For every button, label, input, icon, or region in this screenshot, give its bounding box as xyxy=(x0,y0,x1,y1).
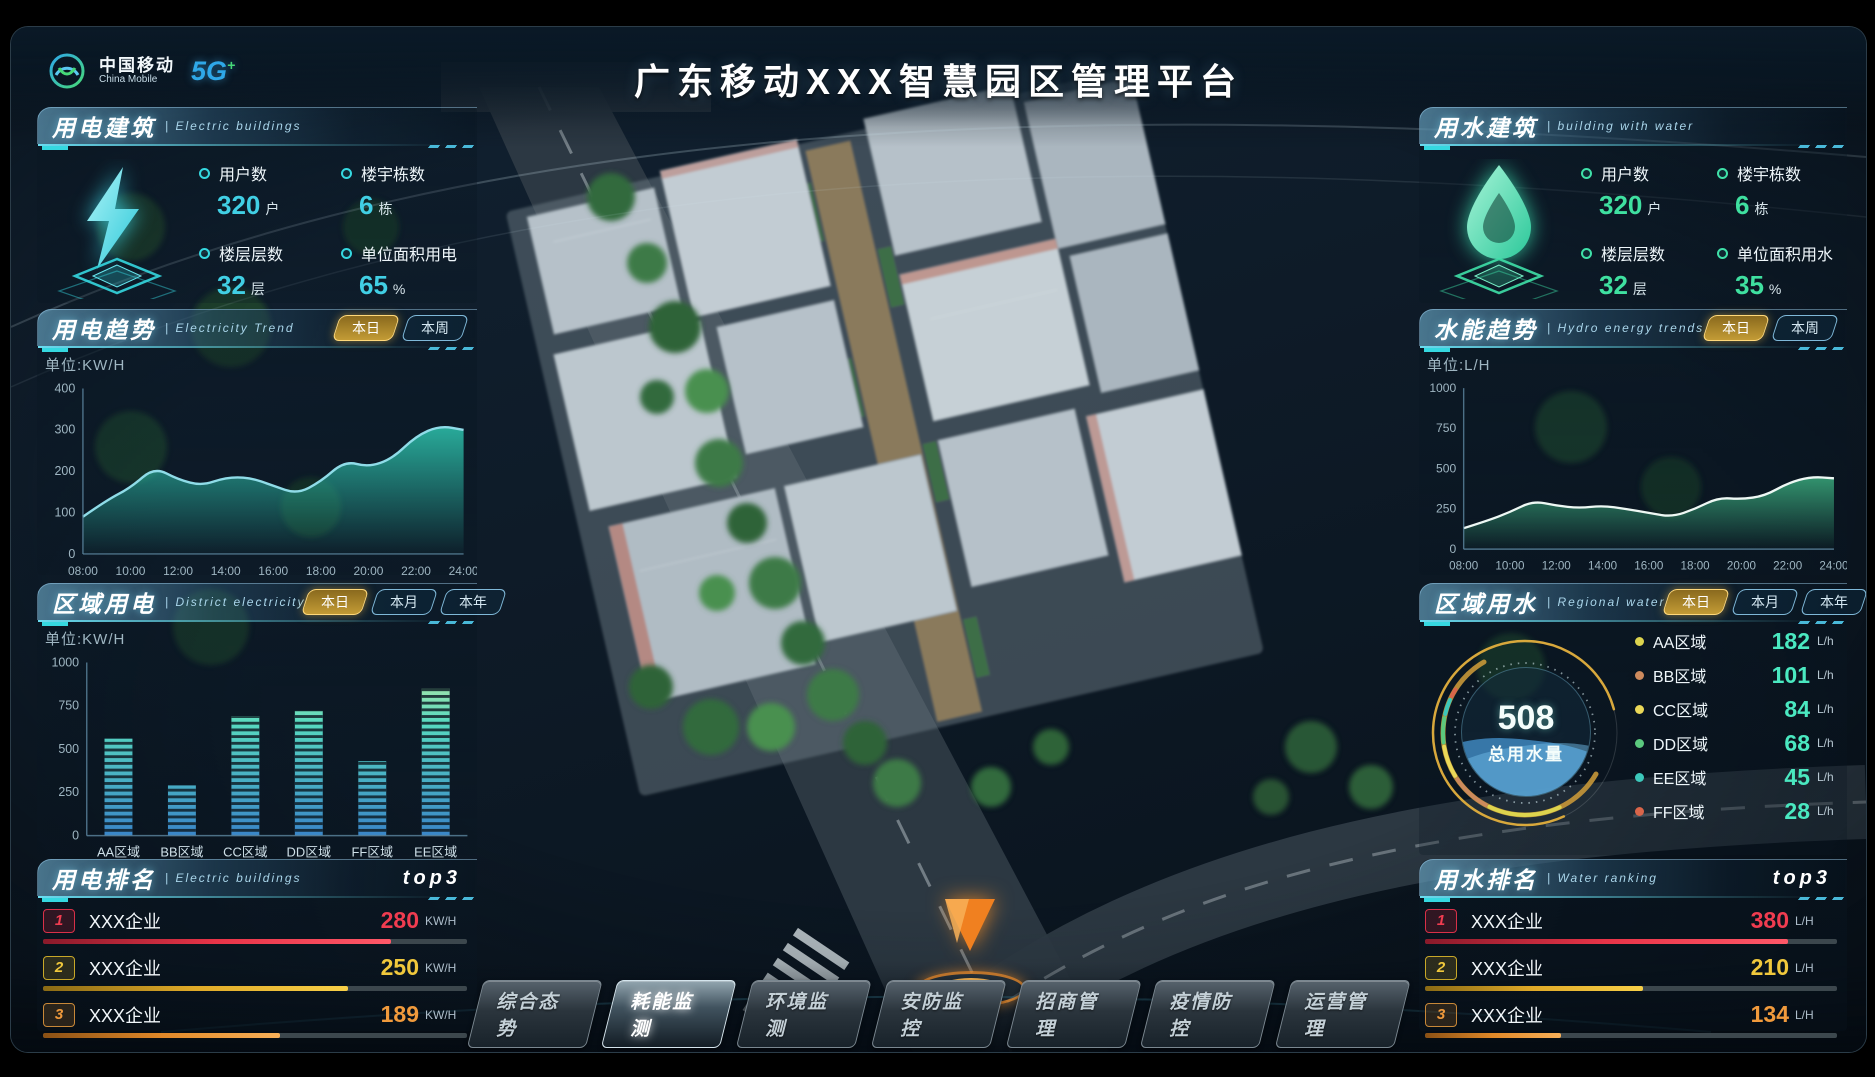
svg-text:08:00: 08:00 xyxy=(1449,560,1478,573)
rank-unit: KW/H xyxy=(425,1008,467,1022)
rank-value: 250 xyxy=(381,954,419,981)
panel-title: 用电建筑 xyxy=(52,109,156,143)
svg-text:08:00: 08:00 xyxy=(68,564,98,578)
legend-item: FF区域 28 L/h xyxy=(1635,799,1843,823)
rank-name: XXX企业 xyxy=(89,1002,161,1028)
tab-month[interactable]: 本月 xyxy=(1730,589,1798,615)
stat-user-count: 用户数 320户 xyxy=(1581,161,1705,221)
rank-badge: 2 xyxy=(1425,956,1457,980)
tab-year[interactable]: 本年 xyxy=(1799,589,1867,615)
unit-label: 单位:L/H xyxy=(1427,354,1847,375)
tab-week[interactable]: 本周 xyxy=(401,315,469,341)
electricity-trend-chart: 010020030040008:0010:0012:0014:0016:0018… xyxy=(37,377,477,588)
rank-bar-fill xyxy=(1425,939,1788,944)
stat-bullet-icon xyxy=(1581,248,1592,259)
svg-text:10:00: 10:00 xyxy=(116,564,146,578)
rank-bar-track xyxy=(43,986,467,991)
water-drop-icon xyxy=(1427,159,1572,299)
svg-text:BB区域: BB区域 xyxy=(160,845,203,860)
nav-tab-comprehensive-situation[interactable]: 综合态势 xyxy=(466,980,602,1048)
svg-text:250: 250 xyxy=(58,785,79,799)
rank-bar-fill xyxy=(1425,1033,1561,1038)
rank-value: 134 xyxy=(1751,1001,1789,1028)
rank-value: 210 xyxy=(1751,954,1789,981)
rank-value: 380 xyxy=(1751,907,1789,934)
legend-dot-icon xyxy=(1635,637,1644,646)
svg-text:100: 100 xyxy=(55,505,76,519)
stat-bullet-icon xyxy=(1717,168,1728,179)
panel-title: 用电排名 xyxy=(52,861,156,895)
marker-arrow-highlight-icon xyxy=(945,899,969,943)
svg-text:0: 0 xyxy=(68,547,75,561)
rank-name: XXX企业 xyxy=(1471,908,1543,934)
stat-bullet-icon xyxy=(199,168,210,179)
rank-badge: 1 xyxy=(1425,909,1457,933)
svg-text:16:00: 16:00 xyxy=(258,564,288,578)
legend-item: AA区域 182 L/h xyxy=(1635,629,1843,653)
legend-dot-icon xyxy=(1635,807,1644,816)
svg-text:AA区域: AA区域 xyxy=(97,845,140,860)
panel-district-electricity: 区域用电 | District electricity 本日 本月 本年 单位:… xyxy=(37,583,477,855)
rank-bar-track xyxy=(1425,939,1837,944)
panel-subtitle: | District electricity xyxy=(165,595,305,609)
nav-tab-energy-monitoring[interactable]: 耗能监测 xyxy=(601,980,737,1048)
rank-badge: 3 xyxy=(43,1003,75,1027)
rank-bar-track xyxy=(43,939,467,944)
top3-badge: top3 xyxy=(403,867,461,890)
panel-subtitle: | Hydro energy trends xyxy=(1547,321,1704,335)
header-dashes xyxy=(1798,897,1847,900)
svg-text:0: 0 xyxy=(72,828,79,842)
rank-value: 280 xyxy=(381,907,419,934)
svg-text:0: 0 xyxy=(1450,542,1457,556)
panel-regional-water: 区域用水 | Regional water 本日 本月 本年 508 总用水量 … xyxy=(1419,583,1847,855)
total-water-label: 总用水量 xyxy=(1488,740,1564,765)
panel-subtitle: | Regional water xyxy=(1547,595,1666,609)
rank-unit: KW/H xyxy=(425,961,467,975)
tab-today[interactable]: 本日 xyxy=(1661,589,1729,615)
header-dashes xyxy=(428,897,477,900)
panel-subtitle: | building with water xyxy=(1547,119,1694,133)
panel-title: 水能趋势 xyxy=(1434,311,1538,345)
stat-unit-area-electricity: 单位面积用电 65% xyxy=(341,241,471,301)
svg-text:14:00: 14:00 xyxy=(211,564,241,578)
header-dashes xyxy=(1798,145,1847,148)
rank-unit: L/H xyxy=(1795,1008,1837,1022)
svg-text:1000: 1000 xyxy=(1429,381,1456,395)
svg-text:22:00: 22:00 xyxy=(1773,560,1802,573)
header-dashes xyxy=(1798,347,1847,350)
lightning-icon xyxy=(45,159,190,299)
rank-bar-fill xyxy=(43,986,348,991)
water-gauge-core: 508 总用水量 xyxy=(1461,667,1591,797)
svg-text:18:00: 18:00 xyxy=(306,564,336,578)
svg-text:500: 500 xyxy=(58,742,79,756)
rank-bar-track xyxy=(1425,1033,1837,1038)
svg-text:FF区域: FF区域 xyxy=(351,845,393,860)
panel-title: 用水建筑 xyxy=(1434,109,1538,143)
svg-text:300: 300 xyxy=(55,423,76,437)
legend-item: CC区域 84 L/h xyxy=(1635,697,1843,721)
stat-bullet-icon xyxy=(1717,248,1728,259)
rank-name: XXX企业 xyxy=(1471,955,1543,981)
stat-building-count: 楼宇栋数 6栋 xyxy=(341,161,471,221)
svg-text:22:00: 22:00 xyxy=(401,564,431,578)
header-dashes xyxy=(1798,621,1847,624)
panel-water-buildings: 用水建筑 | building with water 用户数 320户 楼宇栋数… xyxy=(1419,107,1847,303)
panel-title: 用水排名 xyxy=(1434,861,1538,895)
nav-tab-investment-management[interactable]: 招商管理 xyxy=(1005,980,1141,1048)
tab-today[interactable]: 本日 xyxy=(1702,315,1770,341)
tab-week[interactable]: 本周 xyxy=(1771,315,1839,341)
stat-building-count: 楼宇栋数 6栋 xyxy=(1717,161,1841,221)
panel-title: 用电趋势 xyxy=(52,311,156,345)
rank-badge: 1 xyxy=(43,909,75,933)
rank-badge: 2 xyxy=(43,956,75,980)
rank-row: 1 XXX企业 380 L/H xyxy=(1425,906,1837,944)
rank-unit: L/H xyxy=(1795,961,1837,975)
legend-item: BB区域 101 L/h xyxy=(1635,663,1843,687)
svg-text:CC区域: CC区域 xyxy=(223,845,268,860)
header-dashes xyxy=(428,347,477,350)
rank-row: 3 XXX企业 134 L/H xyxy=(1425,1000,1837,1038)
tab-month[interactable]: 本月 xyxy=(370,589,438,615)
svg-text:500: 500 xyxy=(1436,461,1456,475)
stat-unit-area-water: 单位面积用水 35% xyxy=(1717,241,1841,301)
nav-tab-security-monitoring[interactable]: 安防监控 xyxy=(871,980,1007,1048)
svg-text:12:00: 12:00 xyxy=(163,564,193,578)
stat-bullet-icon xyxy=(341,168,352,179)
page-title: 广东移动XXX智慧园区管理平台 xyxy=(11,53,1866,105)
svg-text:750: 750 xyxy=(58,699,79,713)
svg-text:20:00: 20:00 xyxy=(1727,560,1756,573)
water-region-legend: AA区域 182 L/h BB区域 101 L/h CC区域 84 L/h DD… xyxy=(1635,629,1843,833)
rank-bar-track xyxy=(1425,986,1837,991)
svg-text:24:00: 24:00 xyxy=(449,564,477,578)
tab-today[interactable]: 本日 xyxy=(332,315,400,341)
panel-subtitle: | Electric buildings xyxy=(165,119,302,133)
stat-bullet-icon xyxy=(1581,168,1592,179)
panel-electric-buildings: 用电建筑 | Electric buildings 用户数 320户 楼宇栋数 … xyxy=(37,107,477,303)
dashboard-screen: 中国移动 China Mobile 5G+ 广东移动XXX智慧园区管理平台 用电… xyxy=(10,26,1867,1053)
total-water-value: 508 xyxy=(1498,699,1555,738)
stat-bullet-icon xyxy=(341,248,352,259)
panel-title: 区域用水 xyxy=(1434,585,1538,619)
legend-dot-icon xyxy=(1635,773,1644,782)
nav-tab-epidemic-prevention[interactable]: 疫情防控 xyxy=(1140,980,1276,1048)
tab-today[interactable]: 本日 xyxy=(301,589,369,615)
stat-floor-count: 楼层层数 32层 xyxy=(1581,241,1705,301)
rank-row: 2 XXX企业 250 KW/H xyxy=(43,953,467,991)
rank-name: XXX企业 xyxy=(89,908,161,934)
svg-text:1000: 1000 xyxy=(51,655,79,669)
svg-text:750: 750 xyxy=(1436,421,1456,435)
svg-text:10:00: 10:00 xyxy=(1495,560,1524,573)
rank-row: 3 XXX企业 189 KW/H xyxy=(43,1000,467,1038)
rank-name: XXX企业 xyxy=(1471,1002,1543,1028)
panel-electricity-ranking: 用电排名 | Electric buildings top3 1 XXX企业 2… xyxy=(37,859,477,1031)
svg-text:20:00: 20:00 xyxy=(353,564,383,578)
panel-subtitle: | Water ranking xyxy=(1547,871,1658,885)
panel-hydro-trend: 水能趋势 | Hydro energy trends 本日 本周 单位:L/H … xyxy=(1419,309,1847,575)
rank-unit: L/H xyxy=(1795,914,1837,928)
panel-title: 区域用电 xyxy=(52,585,156,619)
svg-text:24:00: 24:00 xyxy=(1819,560,1847,573)
tab-year[interactable]: 本年 xyxy=(439,589,507,615)
svg-text:18:00: 18:00 xyxy=(1681,560,1710,573)
rank-bar-fill xyxy=(43,1033,280,1038)
total-water-gauge: 508 总用水量 xyxy=(1425,631,1625,831)
panel-subtitle: | Electricity Trend xyxy=(165,321,295,335)
legend-item: DD区域 68 L/h xyxy=(1635,731,1843,755)
rank-value: 189 xyxy=(381,1001,419,1028)
svg-text:14:00: 14:00 xyxy=(1588,560,1617,573)
bottom-nav: 综合态势 耗能监测 环境监测 安防监控 招商管理 疫情防控 运营管理 xyxy=(475,980,1403,1048)
legend-dot-icon xyxy=(1635,671,1644,680)
svg-text:DD区域: DD区域 xyxy=(287,845,332,860)
panel-electricity-trend: 用电趋势 | Electricity Trend 本日 本周 单位:KW/H 0… xyxy=(37,309,477,575)
legend-dot-icon xyxy=(1635,705,1644,714)
unit-label: 单位:KW/H xyxy=(45,354,477,375)
rank-badge: 3 xyxy=(1425,1003,1457,1027)
nav-tab-operations-management[interactable]: 运营管理 xyxy=(1275,980,1411,1048)
stat-floor-count: 楼层层数 32层 xyxy=(199,241,329,301)
rank-bar-fill xyxy=(1425,986,1643,991)
rank-unit: KW/H xyxy=(425,914,467,928)
top3-badge: top3 xyxy=(1773,867,1831,890)
rank-bar-fill xyxy=(43,939,391,944)
hydro-trend-chart: 0250500750100008:0010:0012:0014:0016:001… xyxy=(1419,377,1847,582)
panel-subtitle: | Electric buildings xyxy=(165,871,302,885)
svg-text:EE区域: EE区域 xyxy=(414,845,457,860)
svg-text:16:00: 16:00 xyxy=(1634,560,1663,573)
svg-text:250: 250 xyxy=(1436,502,1456,516)
stat-bullet-icon xyxy=(199,248,210,259)
legend-dot-icon xyxy=(1635,739,1644,748)
stat-user-count: 用户数 320户 xyxy=(199,161,329,221)
nav-tab-environment-monitoring[interactable]: 环境监测 xyxy=(736,980,872,1048)
header-dashes xyxy=(428,145,477,148)
svg-text:12:00: 12:00 xyxy=(1542,560,1571,573)
district-electricity-chart: AA区域BB区域CC区域DD区域FF区域EE区域02505007501000 xyxy=(37,651,477,871)
svg-text:400: 400 xyxy=(55,381,76,395)
unit-label: 单位:KW/H xyxy=(45,628,477,649)
rank-row: 2 XXX企业 210 L/H xyxy=(1425,953,1837,991)
header-dashes xyxy=(428,621,477,624)
rank-row: 1 XXX企业 280 KW/H xyxy=(43,906,467,944)
svg-text:200: 200 xyxy=(55,464,76,478)
rank-name: XXX企业 xyxy=(89,955,161,981)
rank-bar-track xyxy=(43,1033,467,1038)
legend-item: EE区域 45 L/h xyxy=(1635,765,1843,789)
panel-water-ranking: 用水排名 | Water ranking top3 1 XXX企业 380 L/… xyxy=(1419,859,1847,1031)
